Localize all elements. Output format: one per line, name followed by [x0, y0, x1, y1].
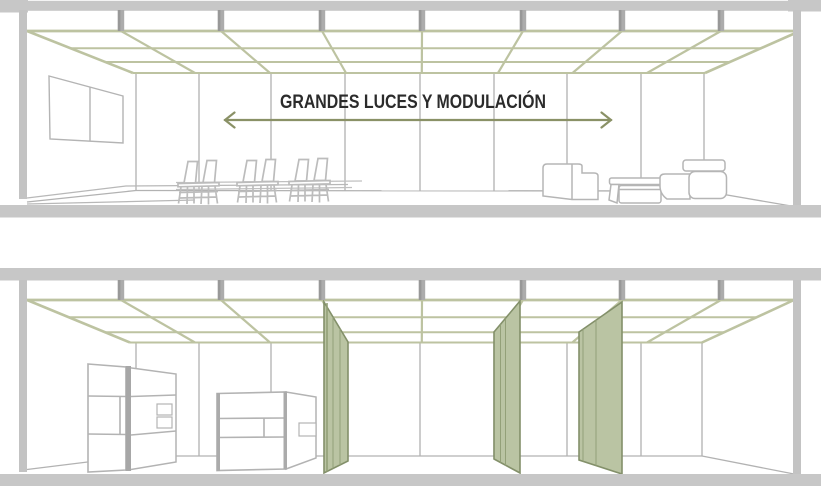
svg-text:GRANDES LUCES Y MODULACIÓN: GRANDES LUCES Y MODULACIÓN	[280, 89, 546, 113]
